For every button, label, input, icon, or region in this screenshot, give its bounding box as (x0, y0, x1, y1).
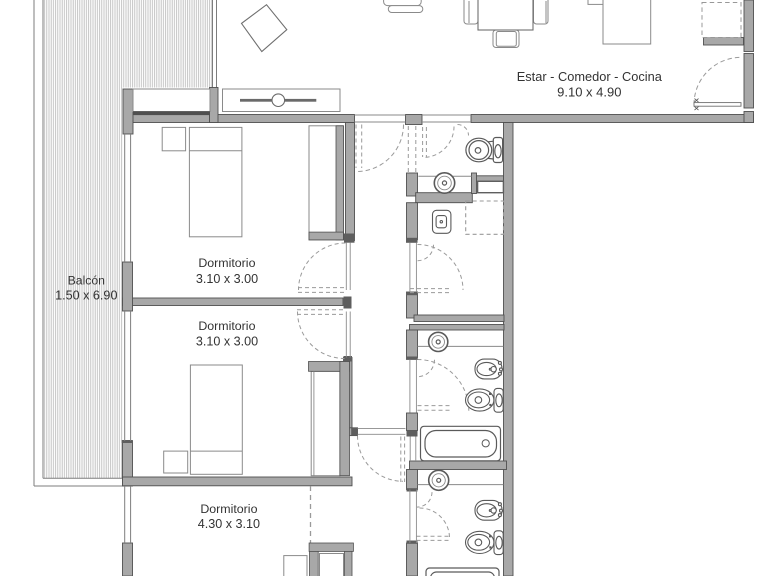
svg-text:3.10 x 3.00: 3.10 x 3.00 (196, 272, 258, 286)
svg-text:Estar - Comedor - Cocina: Estar - Comedor - Cocina (517, 69, 663, 84)
svg-text:4.30 x 3.10: 4.30 x 3.10 (198, 517, 260, 531)
svg-text:1.50 x 6.90: 1.50 x 6.90 (55, 289, 117, 303)
svg-text:Dormitorio: Dormitorio (198, 256, 255, 270)
svg-text:3.10 x 3.00: 3.10 x 3.00 (196, 334, 258, 348)
svg-text:9.10 x 4.90: 9.10 x 4.90 (557, 85, 621, 100)
svg-text:Dormitorio: Dormitorio (200, 502, 257, 516)
svg-text:Balcón: Balcón (68, 274, 105, 288)
svg-text:Dormitorio: Dormitorio (198, 319, 255, 333)
